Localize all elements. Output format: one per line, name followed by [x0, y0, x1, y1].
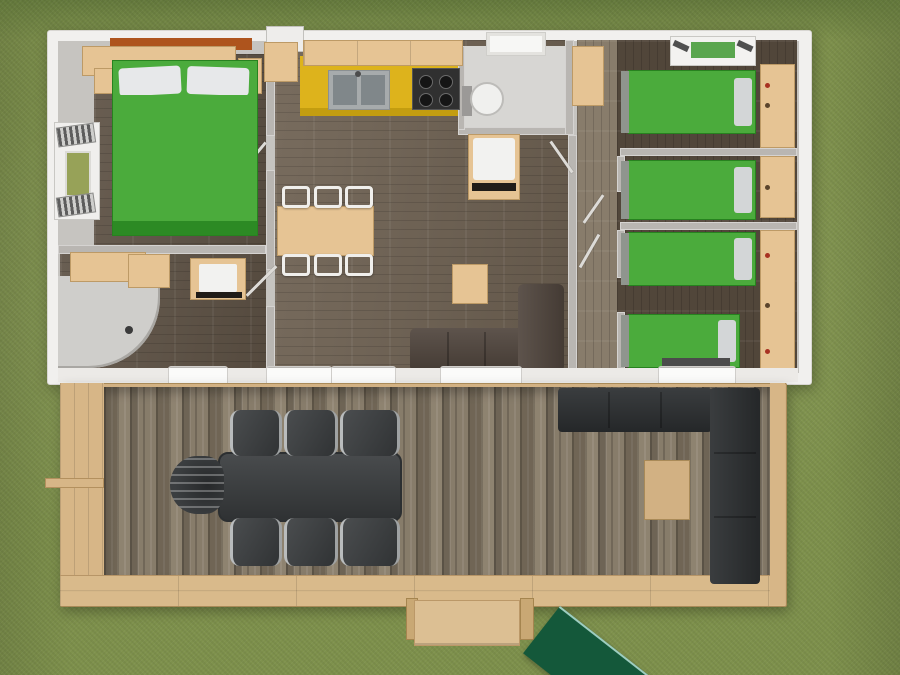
- washbasin-shelf-slot: [472, 183, 516, 191]
- dining-chair: [282, 254, 310, 276]
- washbasin-unit-2: [190, 258, 246, 300]
- wall-bed2-bed3: [620, 222, 797, 230]
- dining-chair: [282, 186, 310, 208]
- duvet: [113, 95, 257, 223]
- skylight-window: [486, 32, 546, 56]
- patio-chair: [284, 410, 338, 456]
- kitchen-sink: [328, 70, 390, 110]
- single-bed-3: [628, 232, 756, 286]
- sofa-seam: [660, 392, 662, 428]
- window-pane: [65, 151, 91, 197]
- sofa-seam: [447, 332, 449, 368]
- single-bed-1: [628, 70, 756, 134]
- dining-table: [277, 206, 374, 256]
- kitchen-cabinet-left: [264, 42, 298, 82]
- bed-headrail: [621, 161, 629, 219]
- burner: [439, 93, 453, 107]
- pillow: [734, 238, 752, 280]
- window-left-wall: [54, 122, 100, 220]
- washbasin-unit: [468, 134, 520, 200]
- pillow: [734, 167, 752, 213]
- bed-headrail: [621, 233, 629, 285]
- double-bed: [112, 60, 258, 236]
- stove: [412, 68, 460, 110]
- burner: [419, 93, 433, 107]
- access-ramp: [523, 606, 695, 675]
- dining-chair: [314, 186, 342, 208]
- dining-chair: [314, 254, 342, 276]
- washbasin-top: [473, 138, 515, 180]
- bed-footboard: [113, 221, 257, 235]
- wardrobe-unit-3: [760, 230, 795, 370]
- deck-rail-right: [770, 383, 785, 605]
- wardrobe-handle-red: [765, 253, 770, 258]
- sink-faucet: [355, 71, 361, 77]
- sofa-chaise-section: [518, 284, 564, 372]
- wardrobe-handle: [765, 185, 770, 190]
- dining-chair: [345, 254, 373, 276]
- sofa-seam: [608, 392, 610, 428]
- single-bed-2: [628, 160, 756, 220]
- entrance-step: [414, 600, 520, 646]
- patio-table: [218, 452, 402, 522]
- coffee-table: [452, 264, 488, 304]
- floorplan-scene: [0, 0, 900, 675]
- step-post-right: [520, 598, 534, 640]
- shower-drain: [125, 326, 133, 334]
- pillow: [718, 320, 736, 362]
- patio-chair: [340, 410, 400, 456]
- burner: [439, 75, 453, 89]
- wardrobe-unit-2: [760, 156, 795, 218]
- window-pane: [691, 42, 735, 58]
- sofa-seam: [714, 452, 756, 454]
- sofa-seam: [484, 332, 486, 368]
- patio-chair: [284, 518, 338, 566]
- pillow: [734, 78, 752, 126]
- bed-headrail: [621, 71, 629, 133]
- window-shutter-bottom: [56, 192, 96, 217]
- patio-sofa-top: [558, 388, 712, 432]
- patio-sofa-right: [710, 388, 760, 584]
- window-shutter-top: [56, 122, 96, 147]
- bed-headrail: [621, 315, 629, 367]
- patio-chair: [230, 410, 282, 456]
- deck-rail-joint: [45, 478, 104, 488]
- patio-head-chair: [170, 456, 224, 514]
- washbasin-2-slot: [196, 292, 242, 298]
- kitchen-upper-cabinets: [303, 40, 463, 66]
- sink-basin-right: [361, 75, 385, 105]
- patio-coffee-table: [644, 460, 690, 520]
- window-sill-bar: [672, 40, 689, 52]
- deck-rail-left: [60, 383, 104, 600]
- sink-basin-left: [333, 75, 357, 105]
- wall-bedroom1-c: [266, 306, 275, 372]
- tall-cabinet: [572, 46, 604, 106]
- wardrobe-handle-red: [765, 83, 770, 88]
- wall-bedroom1-b: [266, 170, 275, 270]
- patio-chair: [340, 518, 400, 566]
- toilet-bowl: [470, 82, 504, 116]
- wardrobe-unit-1: [760, 64, 795, 148]
- washbasin-2-top: [199, 264, 237, 292]
- burner: [419, 75, 433, 89]
- wardrobe-handle: [765, 103, 770, 108]
- window-sill-bar: [736, 40, 753, 52]
- dining-chair: [345, 186, 373, 208]
- wall-bed1-bed2: [620, 148, 797, 156]
- patio-chair: [230, 518, 282, 566]
- pillow-right: [187, 66, 250, 96]
- wardrobe-handle-red: [765, 349, 770, 354]
- wardrobe-handle: [765, 303, 770, 308]
- pillow-left: [118, 65, 181, 96]
- window-top-right: [670, 36, 756, 66]
- entry-cabinet: [128, 254, 170, 288]
- sofa-seam: [714, 516, 756, 518]
